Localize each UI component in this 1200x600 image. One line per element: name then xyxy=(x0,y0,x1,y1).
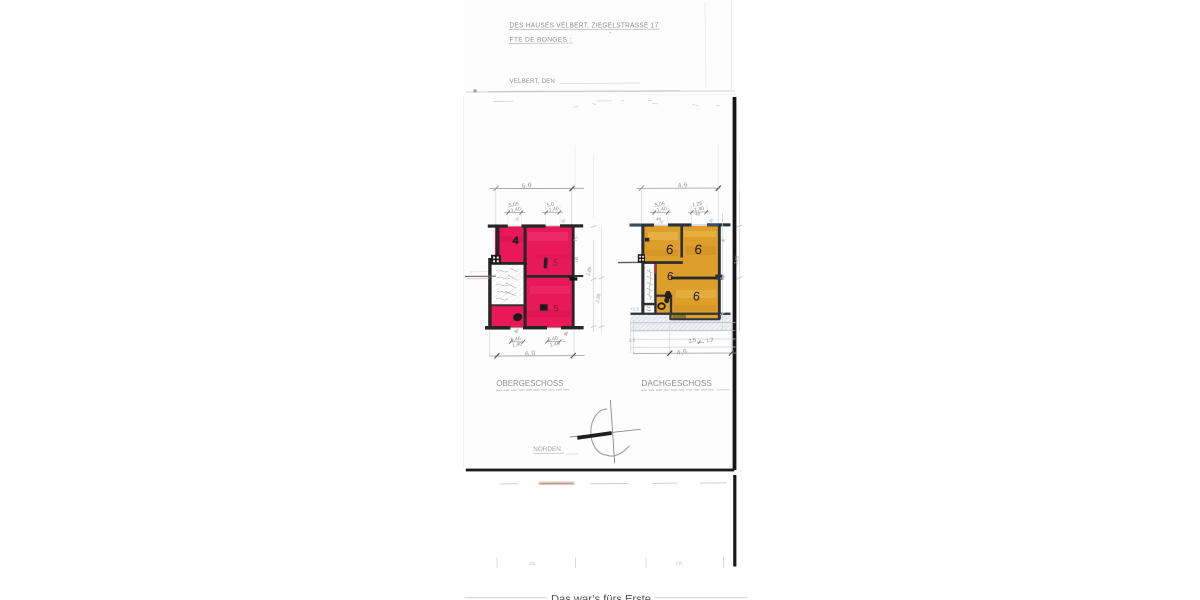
svg-text:DES HAUSES VELBERT, ZIEGELSTRA: DES HAUSES VELBERT, ZIEGELSTRASSE 17 xyxy=(510,22,659,29)
svg-text:OBERGESCHOSS: OBERGESCHOSS xyxy=(496,379,564,388)
svg-text:Das war’s fürs Erste: Das war’s fürs Erste xyxy=(551,593,651,600)
svg-text:48: 48 xyxy=(695,211,701,216)
svg-text:DACHGESCHOSS: DACHGESCHOSS xyxy=(641,379,712,388)
svg-text:FTE DE BONGES :: FTE DE BONGES : xyxy=(510,36,572,43)
svg-text:VELBERT, DEN: VELBERT, DEN xyxy=(510,78,556,85)
svg-text:4,6: 4,6 xyxy=(677,181,688,189)
svg-text:+: + xyxy=(609,30,612,35)
svg-text:4: 4 xyxy=(512,235,519,247)
svg-text:+2,5: +2,5 xyxy=(630,307,640,312)
svg-text:2,5: 2,5 xyxy=(629,338,636,344)
svg-text:6,0: 6,0 xyxy=(521,182,532,190)
svg-text:NORDEN: NORDEN xyxy=(533,446,561,453)
svg-text:48: 48 xyxy=(656,217,662,222)
svg-text:ca.: ca. xyxy=(676,561,683,567)
svg-text:ca.: ca. xyxy=(529,561,536,567)
